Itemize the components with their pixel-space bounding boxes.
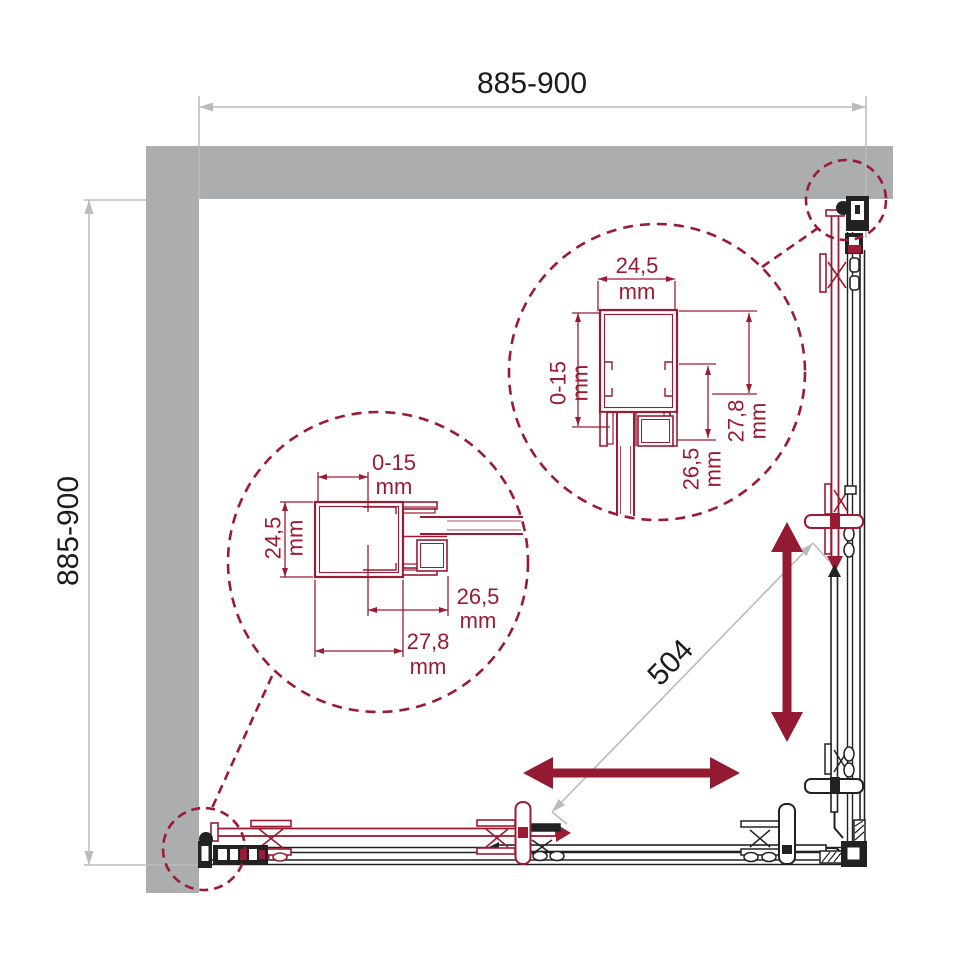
left-dimension-line (84, 200, 201, 865)
lower-total-depth-value: 27,8 (407, 631, 450, 653)
lower-total-depth-unit: mm (410, 656, 447, 678)
overall-depth-label: 885-900 (52, 476, 86, 586)
upper-profile-width-value: 24,5 (616, 255, 659, 277)
upper-adjustment-label: 0-15 mm (548, 361, 593, 405)
right-door-handle-red (805, 513, 863, 529)
roller-bottom-right-black (741, 821, 779, 862)
roller-bottom-center-red (477, 820, 515, 854)
lower-inner-depth-value: 26,5 (457, 586, 500, 608)
slide-direction-arrow-horizontal (523, 757, 740, 789)
top-dimension-line (199, 96, 866, 238)
upper-inner-depth-label: 26,5 mm (681, 448, 726, 491)
wall-profile-bottom-left (198, 832, 268, 868)
upper-profile-width-unit: mm (619, 281, 656, 303)
right-sliding-door-black (828, 564, 843, 838)
right-door-handle-black (805, 777, 863, 794)
lower-profile-width-label: 24,5 mm (263, 517, 308, 560)
lower-adjustment-unit: mm (376, 476, 413, 498)
shower-enclosure-dimension-drawing: 885-900 885-900 504 24,5 mm 0-15 mm 26,5… (0, 0, 970, 970)
bottom-door-handle-red (516, 802, 531, 864)
wall-profile-top-right (836, 196, 869, 254)
drawing-lines (0, 0, 970, 970)
lower-adjustment-value: 0-15 (372, 452, 416, 474)
roller-right-bottom-black (825, 744, 854, 777)
lower-inner-depth-unit: mm (460, 610, 497, 632)
overall-width-label: 885-900 (477, 67, 587, 101)
upper-total-depth-label: 27,8 mm (726, 400, 771, 443)
corner-post (820, 820, 867, 867)
slide-direction-arrow-vertical (771, 522, 803, 742)
bottom-door-handle-black (779, 804, 795, 864)
